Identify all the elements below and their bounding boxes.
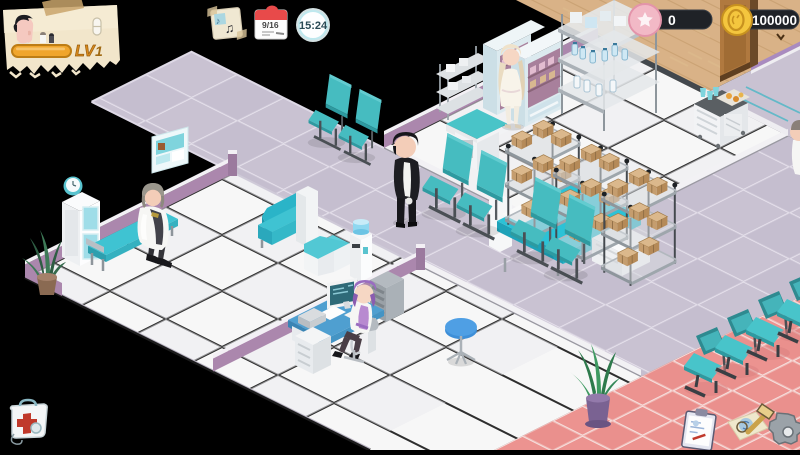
svg-text:♫: ♫ — [224, 20, 235, 36]
svg-text:1: 1 — [95, 43, 103, 59]
svg-text:0: 0 — [668, 12, 676, 28]
svg-text:LV: LV — [75, 43, 96, 60]
svg-text:15:24: 15:24 — [299, 20, 328, 32]
svg-text:100000: 100000 — [752, 13, 797, 28]
svg-text:9/16: 9/16 — [262, 20, 279, 30]
